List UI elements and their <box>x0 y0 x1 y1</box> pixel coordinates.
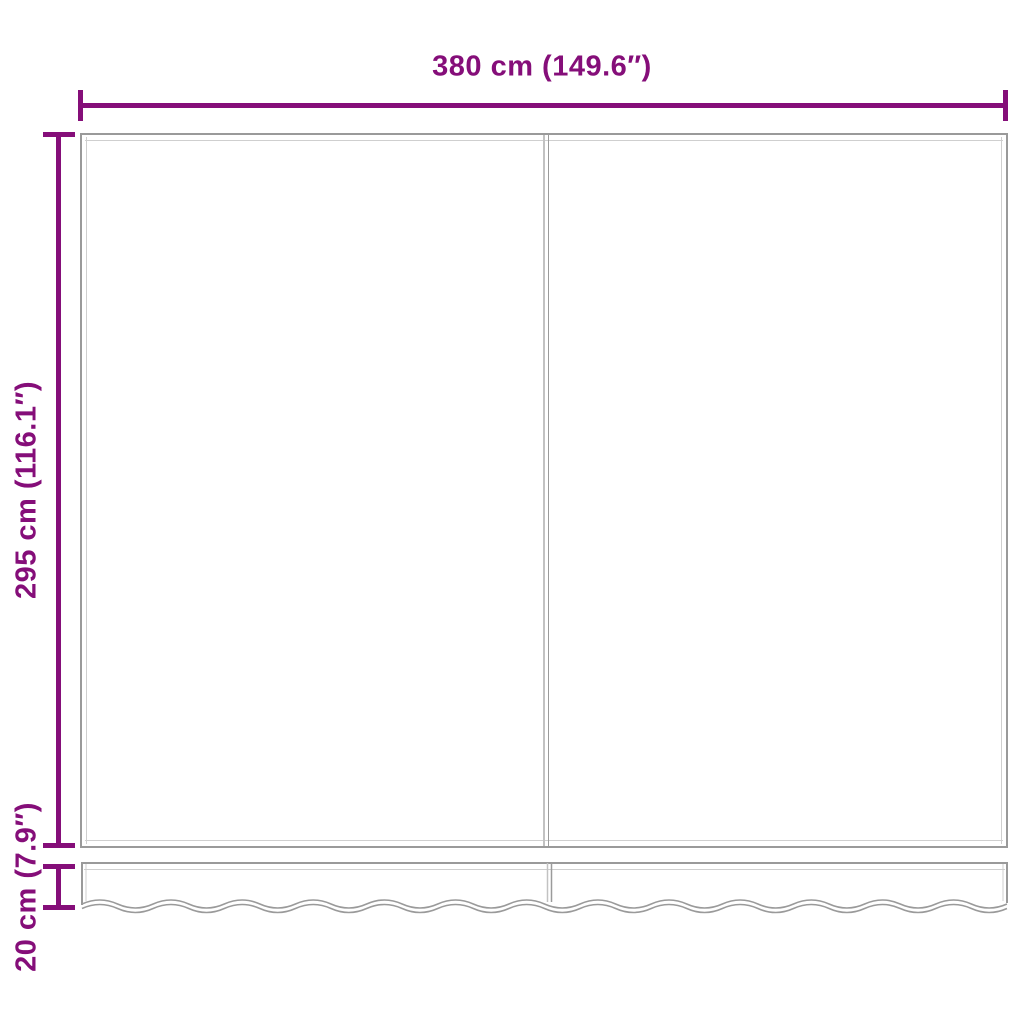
width-dimension-right-tick <box>1003 90 1008 121</box>
height-dimension-bottom-tick <box>43 843 75 848</box>
width-dimension-line <box>79 103 1008 108</box>
width-dimension-left-tick <box>78 90 83 121</box>
valance-dimension-top-tick <box>43 864 75 869</box>
valance-dimension-line <box>56 864 61 910</box>
panel-center-seam-left <box>543 135 545 846</box>
width-dimension-label: 380 cm (149.6″) <box>432 51 652 84</box>
awning-fabric-panel <box>80 133 1008 848</box>
valance-dimension-label: 20 cm (7.9″) <box>11 802 44 972</box>
valance-dimension-bottom-tick <box>43 905 75 910</box>
panel-left-hem-line <box>86 137 87 844</box>
height-dimension-label: 295 cm (116.1″) <box>11 381 44 599</box>
height-dimension-line <box>56 132 61 848</box>
panel-right-hem-line <box>1001 137 1002 844</box>
panel-center-seam-right <box>548 135 550 846</box>
valance <box>81 862 1008 924</box>
height-dimension-top-tick <box>43 132 75 137</box>
dimension-diagram: 380 cm (149.6″) 295 cm (116.1″) 20 cm (7… <box>0 0 1024 1024</box>
